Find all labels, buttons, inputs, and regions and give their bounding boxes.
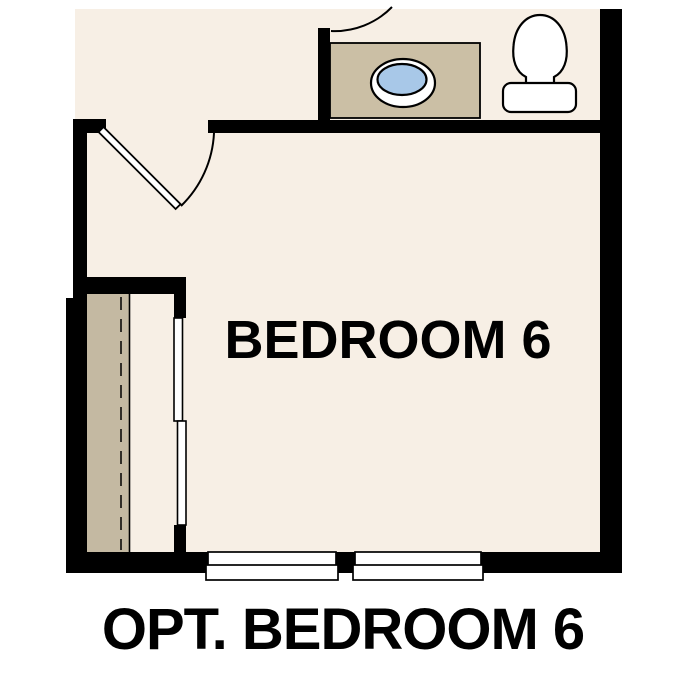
closet-sliding-door-panel-1 — [174, 318, 183, 421]
closet-sliding-door-panel-2 — [178, 421, 187, 525]
floor-plan-canvas: BEDROOM 6 OPT. BEDROOM 6 — [0, 0, 687, 687]
window-1-outer-sash — [206, 565, 338, 580]
window-2-outer-sash — [353, 565, 483, 580]
wall-bathroom-stub — [318, 28, 330, 120]
toilet-bowl — [513, 15, 567, 84]
wall-bath-bedroom-divider — [208, 120, 622, 133]
window-1-inner-sash — [208, 552, 336, 566]
wall-right-exterior — [600, 9, 622, 573]
plan-caption: OPT. BEDROOM 6 — [102, 597, 584, 662]
toilet-tank — [503, 83, 576, 112]
wall-left-upper — [73, 119, 87, 298]
wall-closet-jamb-bottom — [174, 525, 186, 552]
closet-shelf — [87, 294, 129, 552]
window-2-inner-sash — [355, 552, 481, 566]
sink-basin — [378, 64, 427, 95]
wall-closet-jamb-top — [174, 294, 186, 318]
room-label: BEDROOM 6 — [224, 310, 551, 370]
floor-plan: BEDROOM 6 OPT. BEDROOM 6 — [0, 0, 687, 687]
wall-closet-top — [73, 277, 186, 294]
wall-bottom-exterior — [66, 552, 622, 573]
wall-left-lower — [66, 298, 87, 573]
